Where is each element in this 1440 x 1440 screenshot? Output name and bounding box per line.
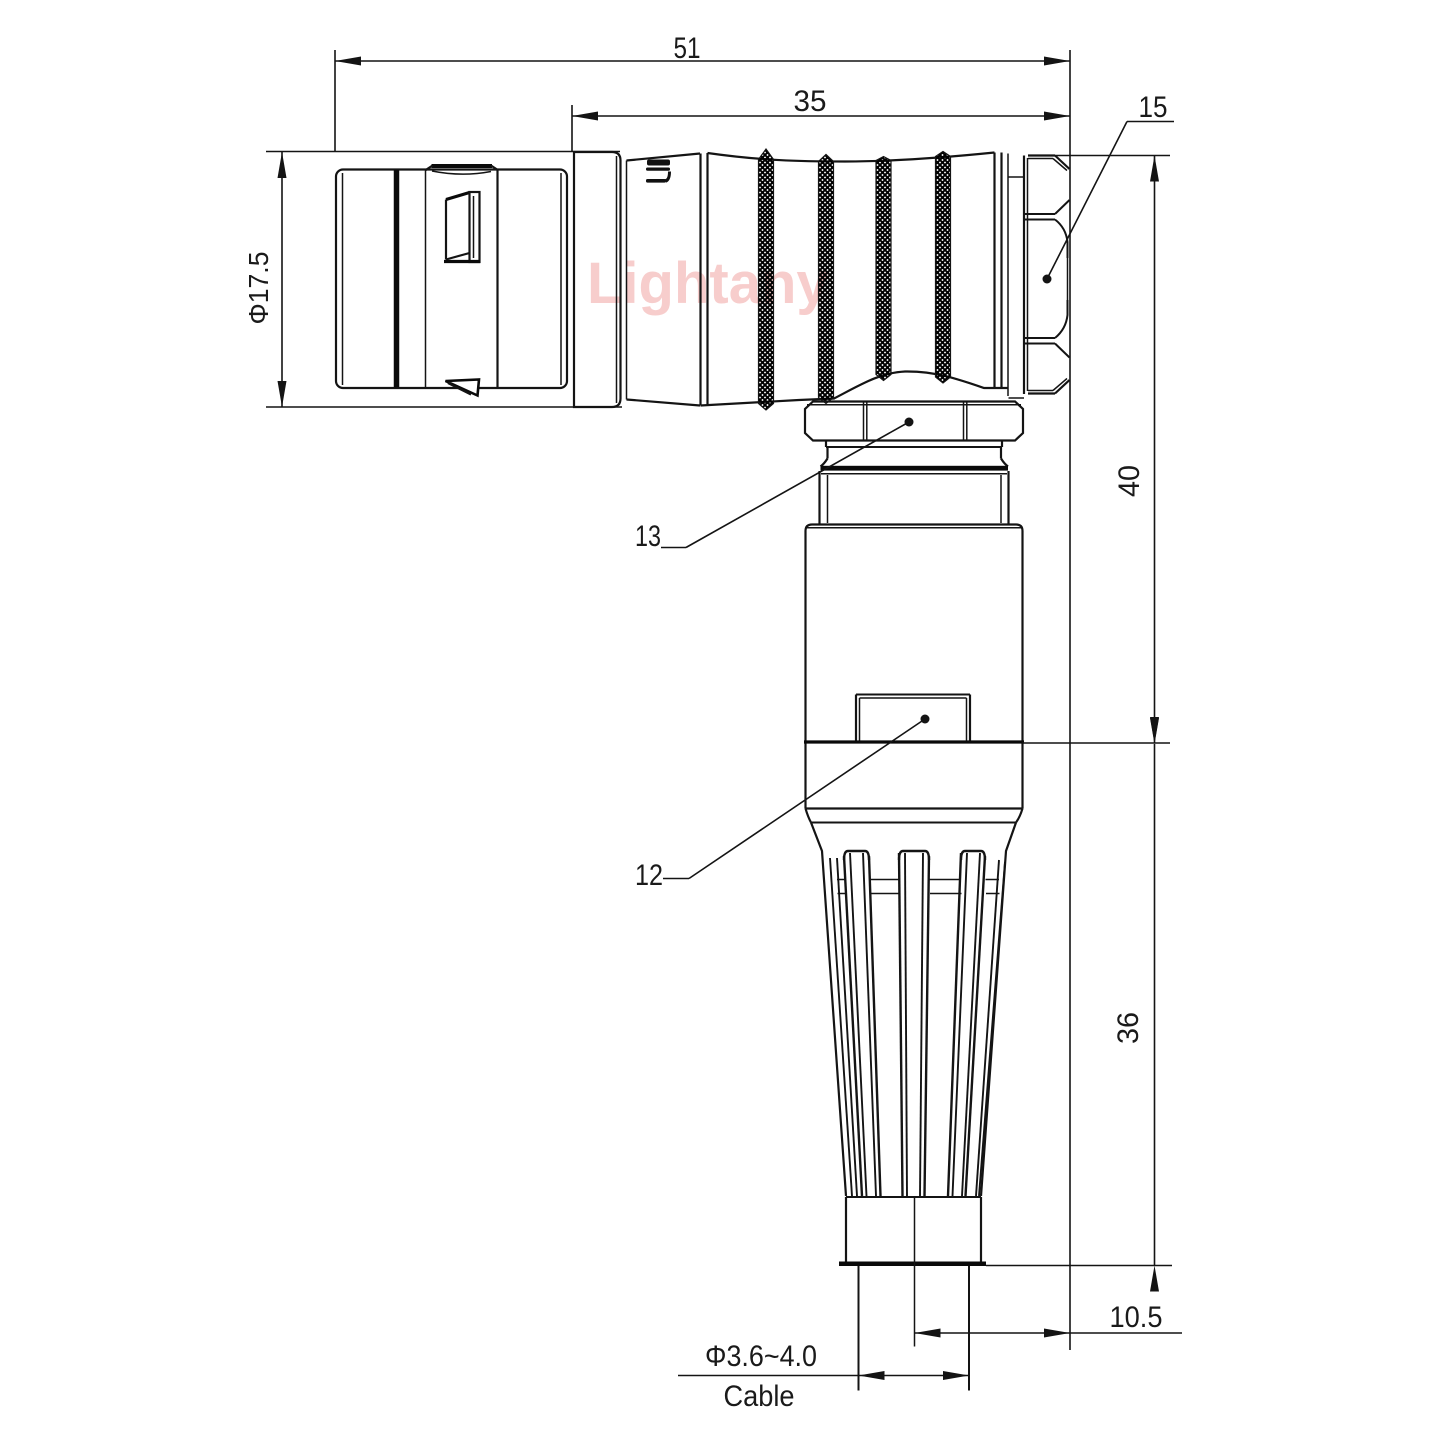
svg-text:Cable: Cable [724,1380,795,1413]
svg-text:35: 35 [794,85,827,118]
svg-text:Φ17.5: Φ17.5 [243,252,274,325]
svg-text:10.5: 10.5 [1110,1301,1163,1334]
svg-text:Φ3.6~4.0: Φ3.6~4.0 [705,1340,817,1373]
svg-text:40: 40 [1113,465,1146,497]
svg-text:13: 13 [635,520,661,553]
svg-text:12: 12 [635,859,663,892]
svg-text:15: 15 [1139,91,1168,124]
svg-text:51: 51 [674,32,701,65]
svg-text:36: 36 [1112,1012,1145,1044]
